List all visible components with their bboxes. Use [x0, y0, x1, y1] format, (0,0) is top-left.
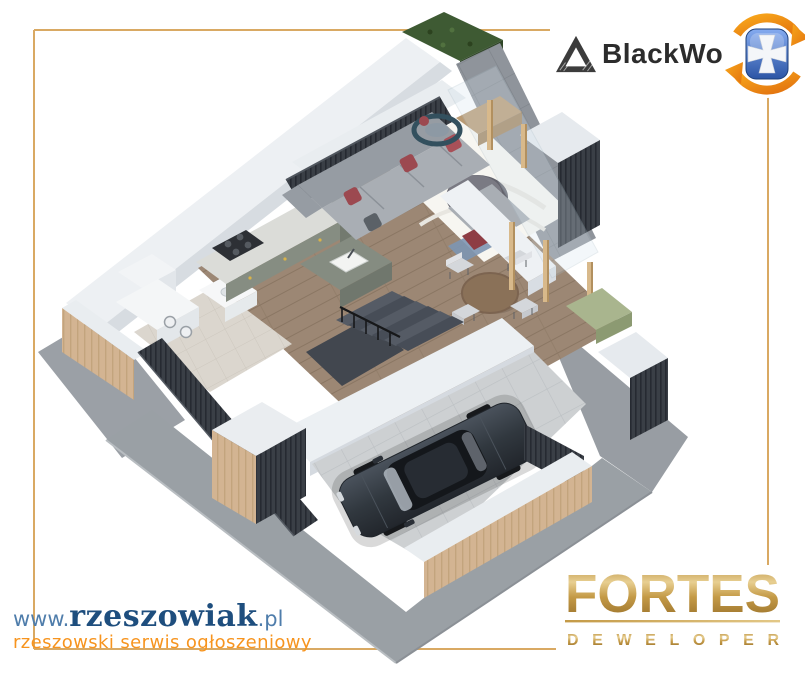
cabinet-handle — [283, 257, 286, 260]
cabinet-handle — [248, 276, 251, 279]
shield-cross-circular-arrows-badge-icon — [721, 8, 805, 100]
url-suffix: .pl — [258, 609, 284, 630]
pillow — [419, 116, 429, 126]
mountain-triangle-icon — [554, 34, 598, 74]
washer-door-icon — [165, 317, 176, 328]
rzeszowiak-name: rzeszowiak — [69, 602, 257, 632]
fortes-logo: FORTES DEWELOPER — [552, 566, 796, 660]
rzeszowiak-url: www.rzeszowiak.pl — [13, 602, 312, 632]
washer-door-icon — [181, 327, 192, 338]
blackwood-wordmark: BlackWo — [602, 38, 723, 70]
real-estate-render-image: BlackWo www.rzeszowiak.pl rzeszo — [0, 0, 805, 675]
fortes-subtitle: DEWELOPER — [567, 632, 779, 649]
blackwood-logo: BlackWo — [550, 22, 805, 96]
url-prefix: www. — [13, 609, 69, 630]
fortes-wordmark: FORTES — [565, 566, 780, 624]
rzeszowiak-watermark: www.rzeszowiak.pl rzeszowski serwis ogło… — [13, 602, 312, 652]
cabinet-handle — [318, 238, 321, 241]
rzeszowiak-tagline: rzeszowski serwis ogłoszeniowy — [13, 634, 312, 652]
fortes-divider — [565, 620, 780, 622]
